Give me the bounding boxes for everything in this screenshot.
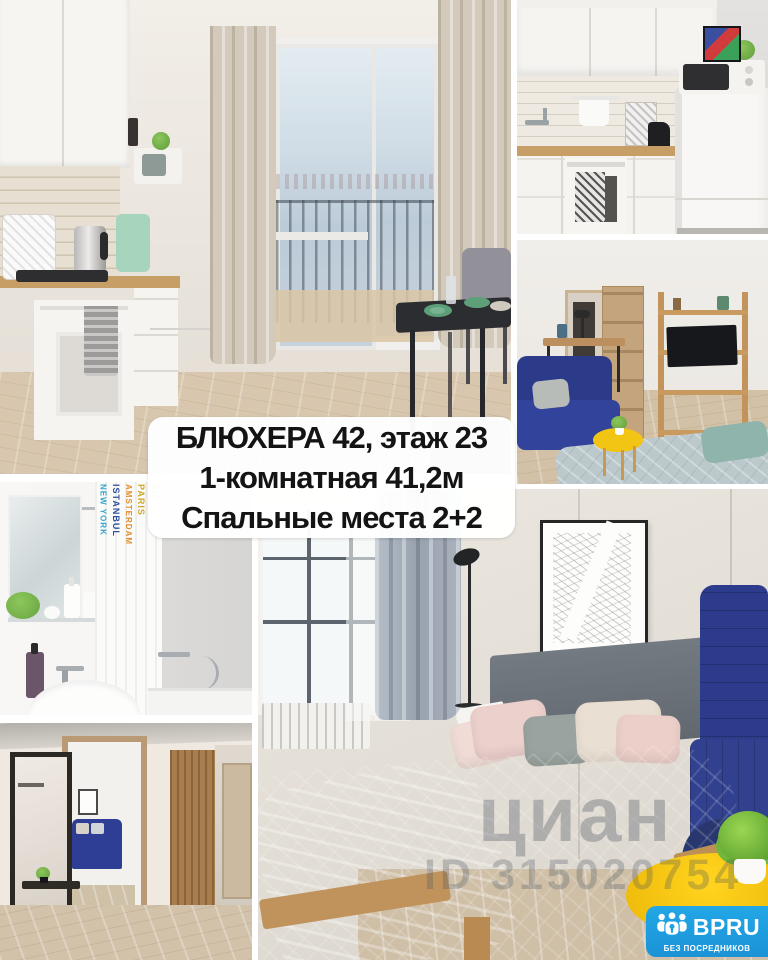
caption-rooms-area: 1-комнатная 41,2м	[199, 458, 463, 498]
kettle-handle	[100, 232, 108, 260]
black-shelf	[22, 881, 80, 889]
curtain-word: ISTANBUL	[111, 484, 121, 708]
city-view	[276, 174, 434, 189]
photo-bedroom: циан ID 315020754	[258, 489, 768, 960]
fridge-seam	[675, 198, 768, 200]
wall-picture	[78, 789, 98, 815]
badge-tagline: БЕЗ ПОСРЕДНИКОВ	[664, 944, 751, 953]
kitchen-upper-cabinets	[0, 0, 130, 168]
fridge-vent	[677, 228, 768, 234]
microwave-door	[683, 64, 729, 90]
badge-row: BPRU	[654, 911, 760, 943]
plant-pot	[615, 428, 624, 435]
white-decor	[44, 606, 60, 619]
caption-sleeping-places: Спальные места 2+2	[181, 498, 482, 538]
table-leg	[633, 446, 636, 472]
pump-bottle	[64, 584, 80, 618]
kitchen-towel	[84, 306, 118, 376]
soap-dispenser-pump	[31, 643, 38, 654]
photo-hallway	[0, 723, 252, 960]
listing-collage: NEW YORKISTANBULAMSTERDAMPARISRIO	[0, 0, 768, 960]
curtain-word: NEW YORK	[99, 484, 108, 708]
chair-leg	[466, 322, 470, 384]
tv	[666, 325, 737, 367]
plate	[490, 301, 511, 311]
green-plate-inner	[430, 307, 445, 314]
sofa-pillow	[76, 823, 89, 834]
green-plate	[464, 297, 490, 308]
wooden-wardrobe	[170, 750, 215, 920]
listing-caption-card: БЛЮХЕРА 42, этаж 23 1-комнатная 41,2м Сп…	[148, 417, 515, 538]
table-leg	[603, 448, 606, 476]
small-picture	[703, 26, 741, 62]
bottle-holder	[128, 118, 138, 146]
wine-glass	[446, 276, 456, 304]
plant-on-fridge	[152, 132, 170, 150]
desk	[543, 338, 625, 346]
sink-faucet-stem	[543, 108, 547, 125]
shelf-board	[658, 390, 748, 395]
curtain-left	[210, 26, 276, 364]
desk-lamp-shade	[574, 310, 590, 318]
photo-kitchen-main	[0, 0, 511, 474]
desk-lamp-stem	[581, 316, 584, 338]
patterned-towel	[575, 172, 605, 222]
hallway-floor	[0, 905, 252, 960]
mirror-reflection-shelf	[18, 783, 44, 787]
badge-brand-text: BPRU	[693, 915, 760, 939]
desk-leg	[617, 346, 620, 392]
blue-sofa-back	[700, 585, 768, 755]
wooden-bed-leg	[464, 917, 490, 960]
white-plant-pot	[734, 859, 766, 884]
microwave-knob	[745, 66, 753, 74]
sink-faucet	[56, 666, 84, 671]
vase	[557, 324, 567, 338]
people-lock-icon	[654, 911, 690, 943]
fridge	[150, 180, 216, 392]
fridge	[675, 88, 768, 234]
tall-mirror	[10, 752, 72, 915]
gray-pillow	[532, 378, 571, 410]
white-towel	[579, 100, 609, 126]
table-leg	[621, 450, 624, 480]
shelf-decor	[673, 298, 681, 310]
floor-lamp-pole	[468, 563, 471, 705]
plant-pot	[40, 877, 48, 883]
green-plant	[6, 592, 40, 619]
photo-kitchen-detail	[517, 0, 768, 234]
bathtub	[148, 688, 252, 715]
curtain-word: AMSTERDAM	[124, 484, 133, 708]
shower-hose	[184, 656, 219, 690]
photo-living-room	[517, 240, 768, 484]
chair-leg	[503, 322, 507, 384]
pump-bottle-top	[69, 577, 74, 586]
door-mid-rail	[276, 232, 368, 240]
cutting-board	[116, 214, 150, 272]
sofa-pillow	[91, 823, 104, 834]
cooktop	[16, 270, 108, 282]
reflected-door	[222, 763, 252, 899]
bpru-logo-badge: BPRU БЕЗ ПОСРЕДНИКОВ	[646, 906, 768, 957]
caption-address: БЛЮХЕРА 42, этаж 23	[176, 418, 487, 458]
microwave-door	[142, 154, 166, 176]
microwave-knob	[745, 78, 753, 86]
curtain-word: PARIS	[136, 484, 146, 708]
shelf-board	[658, 310, 748, 315]
shelf-decor	[717, 296, 729, 310]
oven-handle	[567, 162, 625, 167]
